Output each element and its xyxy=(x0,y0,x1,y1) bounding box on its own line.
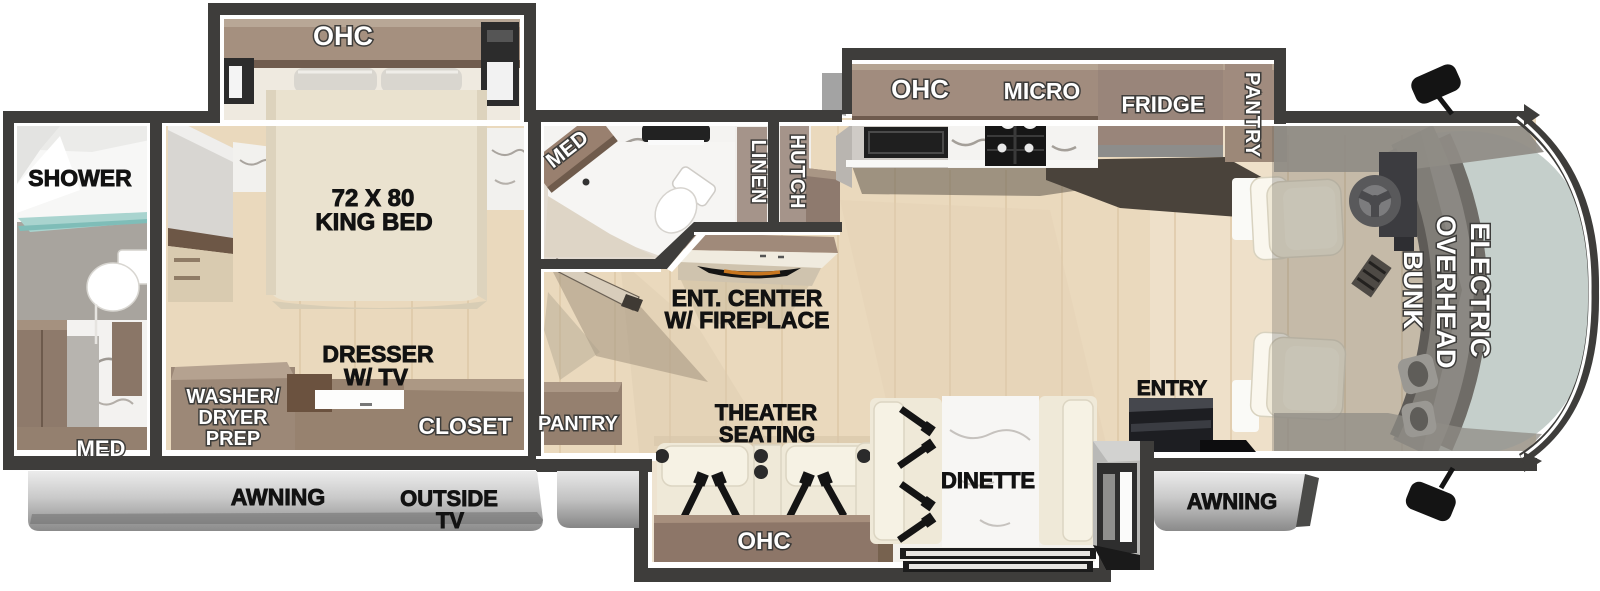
svg-text:SEATING: SEATING xyxy=(719,422,815,447)
svg-text:W/ TV: W/ TV xyxy=(344,364,409,390)
svg-text:ELECTRIC: ELECTRIC xyxy=(1465,223,1495,358)
svg-text:AWNING: AWNING xyxy=(1187,489,1277,514)
svg-text:BUNK: BUNK xyxy=(1398,251,1428,329)
svg-text:OHC: OHC xyxy=(313,21,373,51)
svg-text:OHC: OHC xyxy=(891,74,949,104)
svg-text:LINEN: LINEN xyxy=(747,140,769,205)
svg-text:SHOWER: SHOWER xyxy=(28,165,132,191)
svg-text:PREP: PREP xyxy=(206,428,260,450)
svg-text:TV: TV xyxy=(436,508,464,533)
svg-text:AWNING: AWNING xyxy=(231,484,326,510)
svg-text:DINETTE: DINETTE xyxy=(941,468,1035,493)
svg-text:OHC: OHC xyxy=(737,528,790,555)
svg-text:DRYER: DRYER xyxy=(198,407,268,429)
svg-text:OVERHEAD: OVERHEAD xyxy=(1431,215,1461,368)
svg-text:ENTRY: ENTRY xyxy=(1137,377,1207,400)
svg-text:W/ FIREPLACE: W/ FIREPLACE xyxy=(665,307,830,333)
svg-text:KING BED: KING BED xyxy=(315,209,432,236)
svg-text:HUTCH: HUTCH xyxy=(786,135,808,210)
svg-text:FRIDGE: FRIDGE xyxy=(1121,92,1204,117)
svg-text:CLOSET: CLOSET xyxy=(418,413,511,439)
svg-text:MICRO: MICRO xyxy=(1004,78,1081,104)
svg-text:PANTRY: PANTRY xyxy=(1241,72,1263,158)
svg-text:72 X 80: 72 X 80 xyxy=(332,185,415,212)
svg-text:MED: MED xyxy=(77,436,126,461)
svg-text:PANTRY: PANTRY xyxy=(538,413,619,435)
svg-text:WASHER/: WASHER/ xyxy=(186,386,280,408)
